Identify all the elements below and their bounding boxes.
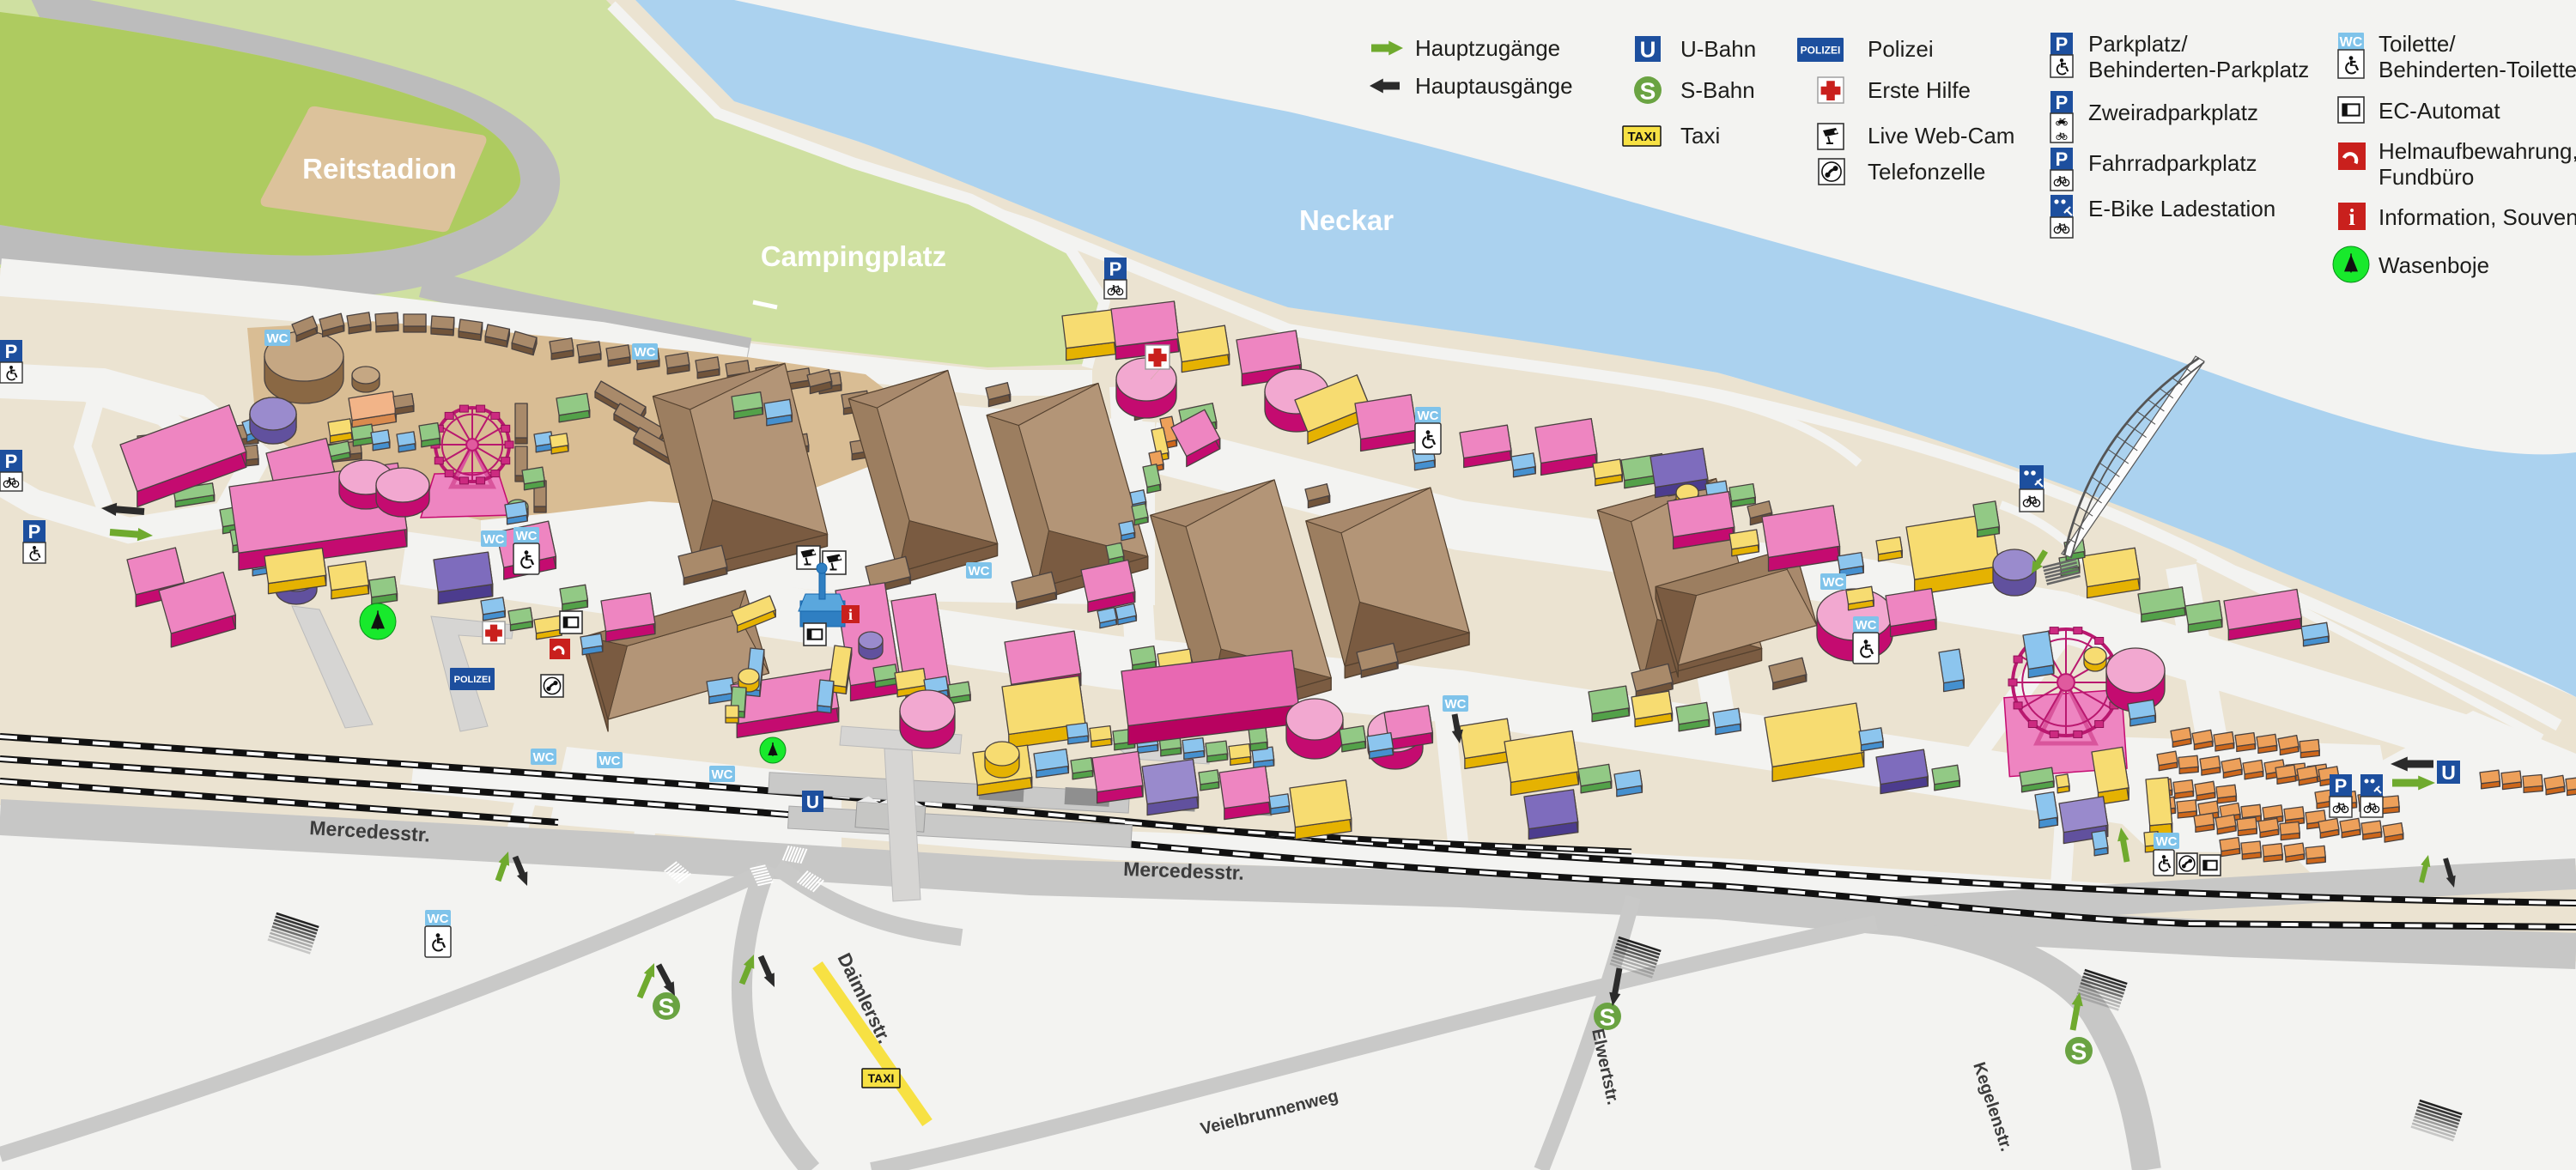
svg-text:WC: WC — [712, 767, 733, 782]
svg-text:WC: WC — [1445, 697, 1467, 712]
svg-text:U-Bahn: U-Bahn — [1680, 36, 1756, 62]
svg-text:S: S — [1600, 1003, 1616, 1030]
svg-text:WC: WC — [969, 564, 990, 579]
svg-text:i: i — [848, 606, 853, 623]
svg-text:Mercedesstr.: Mercedesstr. — [1123, 858, 1244, 884]
svg-text:P: P — [1109, 258, 1122, 280]
svg-text:EC-Automat: EC-Automat — [2379, 98, 2500, 124]
svg-text:P: P — [2056, 33, 2069, 55]
svg-text:Telefonzelle: Telefonzelle — [1868, 159, 1985, 185]
svg-text:WC: WC — [1418, 409, 1439, 423]
svg-text:P: P — [5, 451, 18, 472]
svg-text:Parkplatz/: Parkplatz/ — [2088, 31, 2188, 57]
svg-text:Zweiradparkplatz: Zweiradparkplatz — [2088, 100, 2258, 125]
svg-text:Fahrradparkplatz: Fahrradparkplatz — [2088, 150, 2257, 176]
svg-text:U: U — [2441, 761, 2456, 784]
svg-text:WC: WC — [635, 345, 656, 360]
svg-text:POLIZEI: POLIZEI — [454, 675, 491, 685]
svg-text:P: P — [2335, 775, 2348, 797]
svg-text:WC: WC — [1856, 618, 1877, 633]
svg-text:S: S — [1640, 77, 1656, 104]
svg-text:P: P — [2056, 149, 2069, 170]
svg-text:Campingplatz: Campingplatz — [761, 240, 946, 272]
svg-text:WC: WC — [2156, 834, 2178, 849]
svg-text:Helmaufbewahrung,: Helmaufbewahrung, — [2379, 138, 2576, 164]
svg-text:S-Bahn: S-Bahn — [1680, 77, 1755, 103]
svg-text:S: S — [659, 993, 675, 1020]
svg-text:WC: WC — [428, 912, 449, 926]
svg-text:E-Bike Ladestation: E-Bike Ladestation — [2088, 196, 2275, 221]
svg-text:Neckar: Neckar — [1299, 204, 1394, 236]
svg-text:Reitstadion: Reitstadion — [302, 153, 457, 185]
svg-text:WC: WC — [599, 754, 621, 768]
svg-text:Toilette/: Toilette/ — [2379, 31, 2456, 57]
svg-text:WC: WC — [533, 750, 555, 765]
svg-text:WC: WC — [483, 532, 505, 547]
svg-text:WC: WC — [1823, 575, 1844, 590]
svg-text:WC: WC — [2340, 35, 2363, 50]
svg-text:POLIZEI: POLIZEI — [1801, 44, 1841, 56]
svg-text:TAXI: TAXI — [1627, 130, 1656, 144]
svg-text:S: S — [2071, 1038, 2087, 1064]
svg-text:WC: WC — [267, 331, 289, 346]
svg-text:U: U — [806, 793, 819, 813]
svg-text:Fundbüro: Fundbüro — [2379, 164, 2474, 190]
svg-text:Wasenboje: Wasenboje — [2379, 252, 2489, 278]
svg-text:P: P — [28, 521, 41, 543]
svg-text:Live Web-Cam: Live Web-Cam — [1868, 123, 2014, 149]
svg-text:P: P — [5, 341, 18, 362]
svg-text:Hauptzugänge: Hauptzugänge — [1415, 35, 1560, 61]
svg-text:TAXI: TAXI — [868, 1071, 895, 1085]
svg-text:WC: WC — [516, 529, 538, 543]
svg-text:U: U — [1640, 37, 1656, 63]
svg-text:Information, Souvenirs: Information, Souvenirs — [2379, 204, 2576, 230]
svg-text:P: P — [2056, 92, 2069, 113]
svg-text:i: i — [2348, 204, 2355, 230]
svg-text:Taxi: Taxi — [1680, 123, 1720, 149]
svg-text:Erste Hilfe: Erste Hilfe — [1868, 77, 1971, 103]
svg-text:Hauptausgänge: Hauptausgänge — [1415, 73, 1573, 99]
svg-text:Behinderten-Toilette: Behinderten-Toilette — [2379, 57, 2576, 82]
svg-text:Behinderten-Parkplatz: Behinderten-Parkplatz — [2088, 57, 2309, 82]
svg-text:Polizei: Polizei — [1868, 36, 1934, 62]
